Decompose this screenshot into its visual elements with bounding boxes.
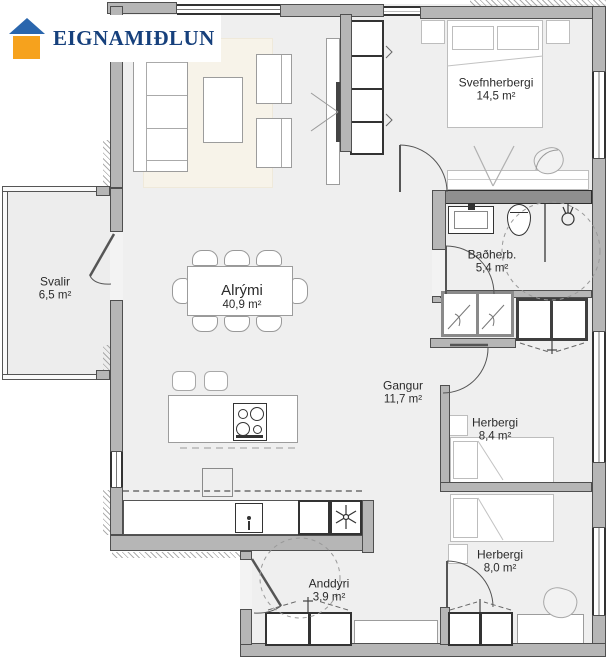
balcony-railing	[2, 374, 110, 380]
bedroom80-wardrobe	[448, 612, 513, 646]
armchair	[256, 54, 292, 104]
brand-logo: EIGNAMIÐLUN	[6, 15, 221, 62]
nightstand	[448, 415, 468, 436]
wall	[592, 158, 606, 332]
window	[384, 6, 420, 16]
wall	[110, 300, 123, 452]
balcony-door-opening	[110, 232, 123, 300]
wall	[440, 482, 592, 492]
nightstand	[546, 20, 570, 44]
cooktop-icon	[233, 403, 267, 441]
wall	[420, 6, 606, 19]
dining-chair	[172, 278, 188, 304]
house-icon	[8, 17, 48, 60]
dining-chair	[292, 278, 308, 304]
exterior-hatch	[103, 140, 110, 186]
glass-closet	[441, 291, 514, 337]
window	[177, 4, 280, 15]
desk	[517, 614, 584, 645]
bath-sink-icon	[448, 206, 494, 234]
window	[110, 452, 123, 487]
room-label-herbergi-80: Herbergi8,0 m²	[477, 549, 523, 576]
wall	[110, 535, 374, 551]
entrance-door-opening	[240, 560, 252, 609]
pillow	[497, 26, 539, 50]
window	[592, 332, 606, 462]
wall	[96, 370, 110, 380]
dining-chair	[256, 316, 282, 332]
dining-chair	[224, 250, 250, 266]
single-bed	[450, 437, 554, 483]
wall	[110, 188, 123, 232]
nightstand	[421, 20, 445, 44]
entry-wardrobe	[265, 612, 352, 646]
hall-wardrobe	[516, 298, 588, 341]
wall	[96, 186, 110, 196]
dishwasher	[298, 500, 330, 535]
kitchen-vent-outline	[202, 468, 233, 497]
wall	[440, 385, 450, 492]
room-label-gangur: Gangur11,7 m²	[383, 380, 423, 407]
coffee-table	[203, 77, 243, 143]
dining-chair	[192, 250, 218, 266]
wall	[433, 190, 592, 204]
dresser	[447, 170, 589, 190]
brand-name: EIGNAMIÐLUN	[53, 26, 215, 51]
wall	[110, 487, 123, 535]
bar-stool	[172, 371, 196, 391]
wall	[592, 6, 606, 72]
wall	[362, 500, 374, 553]
single-bed	[450, 494, 554, 542]
wall	[240, 551, 252, 560]
room-label-svefnherbergi: Svefnherbergi14,5 m²	[459, 77, 534, 104]
shower-partition	[544, 204, 546, 262]
pillow	[453, 498, 478, 538]
double-bed	[447, 20, 543, 128]
room-label-svalir: Svalir6,5 m²	[39, 276, 72, 303]
wall	[280, 4, 384, 17]
room-label-badherbergi: Baðherb.5,4 m²	[468, 249, 517, 276]
room-label-anddyri: Anddyri3,9 m²	[309, 578, 350, 605]
exterior-hatch	[103, 490, 110, 535]
pillow	[453, 441, 478, 479]
kitchen-sink-icon	[235, 503, 263, 533]
sofa	[133, 50, 188, 172]
room-label-alrymi: Alrými40,9 m²	[221, 282, 263, 313]
wall	[592, 462, 606, 528]
dining-chair	[224, 316, 250, 332]
window	[592, 528, 606, 615]
window	[592, 72, 606, 158]
bathroom-door-opening	[432, 250, 446, 296]
upper-cabinets-dashed	[123, 490, 362, 492]
refrigerator	[330, 500, 362, 535]
balcony-railing	[2, 186, 8, 380]
dining-chair	[256, 250, 282, 266]
wardrobe-cabinet	[350, 20, 384, 155]
exterior-hatch	[112, 552, 242, 558]
dining-chair	[192, 316, 218, 332]
room-label-herbergi-84: Herbergi8,4 m²	[472, 417, 518, 444]
armchair	[256, 118, 292, 168]
floorplan: Svefnherbergi14,5 m² Baðherb.5,4 m² Sval…	[0, 0, 610, 661]
balcony-railing	[2, 186, 110, 192]
exterior-area	[110, 551, 240, 661]
wall	[240, 609, 252, 645]
pillow	[452, 26, 494, 50]
wall	[430, 338, 516, 348]
wall	[340, 14, 352, 152]
wall	[432, 190, 446, 250]
entry-bench	[354, 620, 438, 645]
bar-stool	[204, 371, 228, 391]
nightstand	[448, 544, 468, 564]
